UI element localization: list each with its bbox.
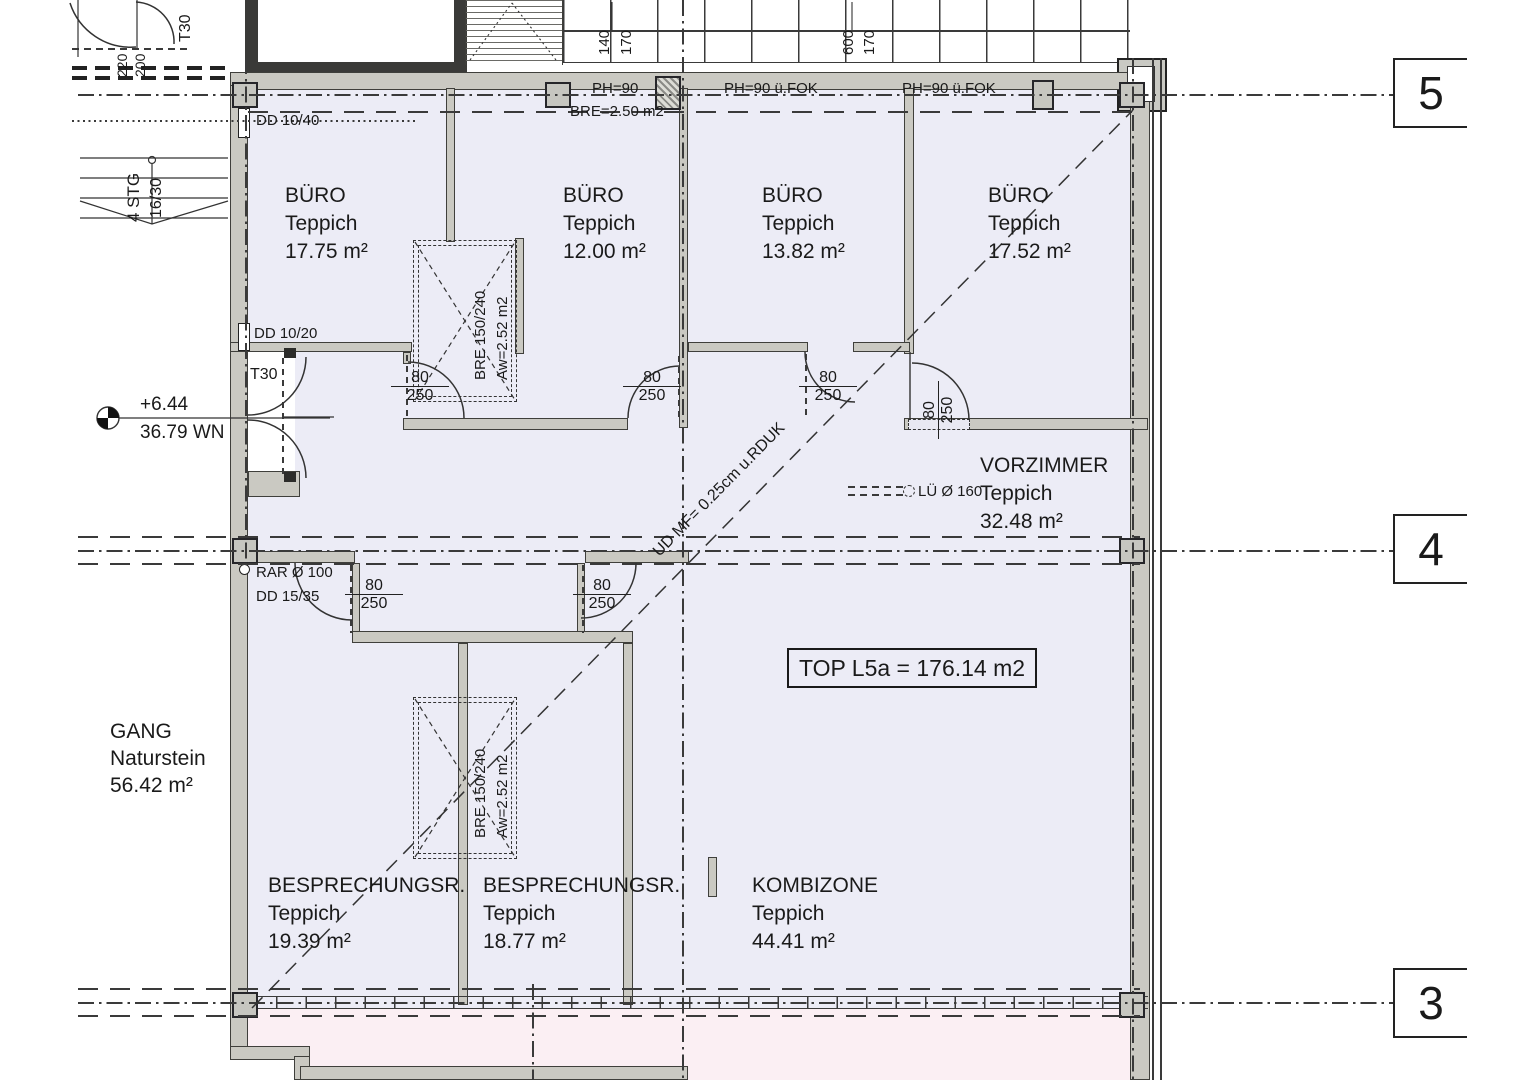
room-area: 17.52 m² — [988, 238, 1071, 266]
door-label-meeting2: 80250 — [580, 578, 624, 611]
room-area: 19.39 m² — [268, 928, 465, 956]
shaft-upper-label-2: Aw=2.52 m2 — [494, 296, 511, 380]
room-label-kombizone: KOMBIZONE Teppich 44.41 m² — [752, 872, 878, 956]
room-label-vorzimmer: VORZIMMER Teppich 32.48 m² — [980, 452, 1108, 536]
room-name: GANG — [110, 718, 206, 745]
annotation-dd-15-35: DD 15/35 — [256, 588, 319, 605]
floor-plan-canvas: 5 4 3 TOP L5a = 176.14 m2 BÜRO Teppich 1… — [0, 0, 1528, 1080]
room-area: 17.75 m² — [285, 238, 368, 266]
annotation-dd-10-40: DD 10/40 — [256, 112, 319, 129]
annotation-ph-1: PH=90 — [592, 80, 638, 97]
room-label-besprechung-1: BESPRECHUNGSR. Teppich 19.39 m² — [268, 872, 465, 956]
door-label-office3: 80250 — [806, 370, 850, 403]
entry-door-arc-bottom — [248, 420, 306, 478]
room-floor: Teppich — [483, 900, 680, 928]
shaft-lower-label-2: Aw=2.52 m2 — [494, 754, 511, 838]
room-area: 12.00 m² — [563, 238, 646, 266]
room-name: BESPRECHUNGSR. — [268, 872, 465, 900]
room-name: BÜRO — [285, 182, 368, 210]
room-label-buero-4: BÜRO Teppich 17.52 m² — [988, 182, 1071, 266]
room-floor: Teppich — [563, 210, 646, 238]
room-area: 44.41 m² — [752, 928, 878, 956]
neighbour-door-arc-2 — [136, 2, 174, 44]
stair-steps-label: 4 STG — [124, 173, 144, 222]
door-label-meeting1: 80250 — [352, 578, 396, 611]
annotation-rar: RAR Ø 100 — [256, 564, 333, 581]
room-label-buero-3: BÜRO Teppich 13.82 m² — [762, 182, 845, 266]
dim-left-200: 200 — [132, 54, 148, 77]
room-name: BÜRO — [988, 182, 1071, 210]
shaft-lower-label-1: BRE 150/240 — [472, 749, 489, 838]
dim-top-600: 600 — [840, 30, 857, 55]
annotation-ph-3: PH=90 ü.FOK — [902, 80, 996, 97]
room-area: 13.82 m² — [762, 238, 845, 266]
door-label-office4: 80250 — [922, 388, 955, 432]
room-label-buero-2: BÜRO Teppich 12.00 m² — [563, 182, 646, 266]
grid-marker-5-label: 5 — [1418, 66, 1444, 120]
room-name: BESPRECHUNGSR. — [483, 872, 680, 900]
annotation-dd-10-20: DD 10/20 — [254, 325, 317, 342]
annotation-bre-area: BRE=2.50 m2 — [570, 103, 664, 120]
annotation-ph-2: PH=90 ü.FOK — [724, 80, 818, 97]
room-label-buero-1: BÜRO Teppich 17.75 m² — [285, 182, 368, 266]
room-name: BÜRO — [762, 182, 845, 210]
room-floor: Teppich — [762, 210, 845, 238]
room-area: 18.77 m² — [483, 928, 680, 956]
room-floor: Teppich — [752, 900, 878, 928]
room-name: KOMBIZONE — [752, 872, 878, 900]
room-area: 56.42 m² — [110, 772, 206, 799]
room-label-gang: GANG Naturstein 56.42 m² — [110, 718, 206, 799]
room-name: VORZIMMER — [980, 452, 1108, 480]
room-floor: Teppich — [988, 210, 1071, 238]
grid-marker-5: 5 — [1393, 58, 1467, 128]
room-floor: Teppich — [980, 480, 1108, 508]
level-elevation: +6.44 — [140, 394, 188, 416]
unit-area-text: TOP L5a = 176.14 m2 — [799, 655, 1025, 682]
room-floor: Teppich — [285, 210, 368, 238]
room-floor: Teppich — [268, 900, 465, 928]
stair-riser-label: 16/30 — [148, 178, 166, 218]
grid-marker-4-label: 4 — [1418, 522, 1444, 576]
dim-top-170a: 170 — [618, 30, 635, 55]
unit-area-label: TOP L5a = 176.14 m2 — [787, 648, 1037, 688]
grid-marker-3-label: 3 — [1418, 976, 1444, 1030]
room-floor: Naturstein — [110, 745, 206, 772]
grid-marker-3: 3 — [1393, 968, 1467, 1038]
shaft-upper-label-1: BRE 150/240 — [472, 291, 489, 380]
dim-top-170b: 170 — [861, 30, 878, 55]
annotation-lue: LÜ Ø 160 — [918, 483, 982, 500]
fire-door-label-top: T30 — [177, 14, 195, 42]
room-name: BÜRO — [563, 182, 646, 210]
dim-left-220: 220 — [114, 54, 130, 77]
fire-door-label-entry: T30 — [250, 366, 278, 384]
room-label-besprechung-2: BESPRECHUNGSR. Teppich 18.77 m² — [483, 872, 680, 956]
room-area: 32.48 m² — [980, 508, 1108, 536]
grid-marker-4: 4 — [1393, 514, 1467, 584]
door-label-office2: 80250 — [630, 370, 674, 403]
door-label-office1: 80250 — [398, 370, 442, 403]
dim-top-140: 140 — [596, 30, 613, 55]
level-reference: 36.79 WN — [140, 422, 224, 444]
neighbour-door-arc-1 — [70, 3, 136, 47]
